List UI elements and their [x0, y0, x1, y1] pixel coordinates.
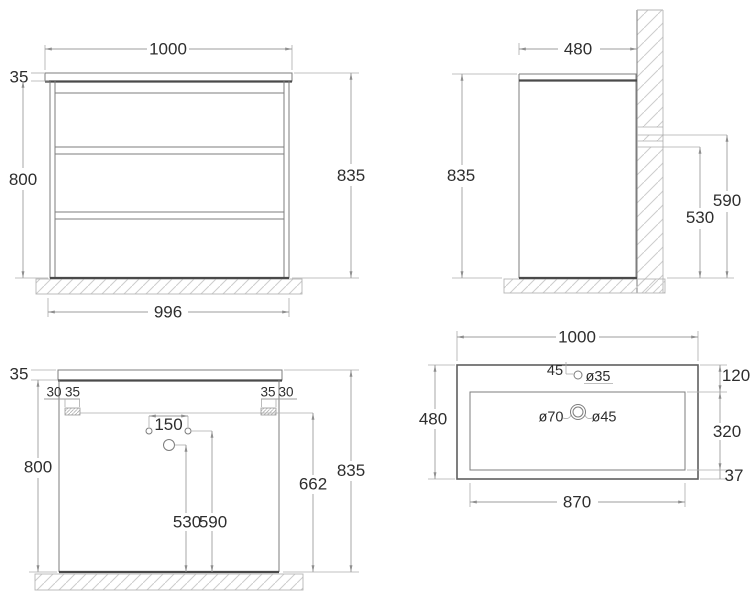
sink-outline — [457, 365, 698, 479]
wall-bracket-right — [261, 408, 276, 415]
side-dim-total-height: 835 — [447, 74, 517, 278]
sink-top-view: 1000 45 ø35 ø70 ø45 480 — [419, 328, 750, 512]
dim-label-sink-depth: 480 — [419, 410, 447, 429]
dim-label-bracket-height: 662 — [299, 475, 327, 494]
technical-drawing-sheet: 1000 35 800 835 996 — [0, 0, 754, 600]
sink-dim-width: 1000 — [457, 328, 698, 362]
dim-label-left-bracket-offset: 30 — [46, 385, 61, 400]
dim-label-right-bracket-offset: 30 — [278, 385, 293, 400]
dim-label-back-edge: 120 — [722, 366, 750, 385]
mounting-hole-left — [146, 428, 152, 434]
dim-label-front-body-height: 800 — [9, 170, 37, 189]
dim-label-tap-diameter: ø35 — [586, 369, 611, 385]
side-view: 480 835 590 530 — [447, 10, 741, 293]
front-dim-top-thickness: 35 — [10, 68, 49, 87]
dim-label-drain-outer: ø70 — [539, 410, 564, 426]
sink-dim-depth: 480 — [419, 365, 455, 479]
dim-label-tap-offset: 45 — [547, 363, 563, 379]
front-dim-body-height: 800 — [9, 81, 48, 278]
side-dim-depth: 480 — [519, 40, 637, 59]
dim-label-lower-connection: 530 — [686, 208, 714, 227]
dim-label-side-total-height: 835 — [447, 166, 475, 185]
dim-label-drain-inner: ø45 — [592, 410, 617, 426]
front-dim-total-height: 835 — [292, 73, 365, 278]
dim-label-front-width: 1000 — [149, 40, 187, 59]
wall-connection-lower — [638, 141, 663, 147]
dim-label-front-total-height: 835 — [337, 166, 365, 185]
back-dim-top-thickness: 35 — [10, 365, 58, 384]
dim-label-front-edge: 37 — [725, 466, 744, 485]
dim-label-back-top-thickness: 35 — [10, 365, 29, 384]
back-dim-total-height: 835 — [283, 370, 365, 572]
dim-label-right-bracket-width: 35 — [260, 385, 275, 400]
dim-label-upper-connection: 590 — [713, 191, 741, 210]
dim-label-front-top-thickness: 35 — [10, 68, 29, 87]
front-dim-base-width: 996 — [48, 298, 289, 322]
sink-dim-basin-depth: 320 — [713, 392, 741, 470]
floor-hatch — [35, 574, 303, 590]
dim-label-front-base-width: 996 — [154, 303, 182, 322]
wall-connection-upper — [638, 127, 663, 135]
back-dim-body-height: 800 — [24, 380, 57, 572]
back-dim-siphon-height: 530 — [173, 445, 201, 572]
sink-dim-basin-width: 870 — [470, 483, 685, 512]
siphon-hole — [164, 440, 175, 451]
dim-label-siphon-height: 530 — [173, 513, 201, 532]
dim-label-back-body-height: 800 — [24, 458, 52, 477]
floor-hatch — [504, 279, 665, 293]
dim-label-basin-width: 870 — [563, 493, 591, 512]
dim-label-side-depth: 480 — [564, 40, 592, 59]
dim-label-hole-spacing: 150 — [154, 415, 182, 434]
floor-hatch — [36, 279, 302, 294]
dim-label-side-hole-height: 590 — [199, 513, 227, 532]
countertop — [58, 370, 282, 380]
back-dim-hole-spacing: 150 — [149, 415, 188, 434]
back-dim-bracket-height: 662 — [299, 413, 327, 572]
vanity-cabinet-drawing: 1000 35 800 835 996 — [0, 0, 754, 600]
dim-label-back-total-height: 835 — [337, 461, 365, 480]
back-view: 30 35 35 30 35 150 590 — [10, 365, 366, 591]
back-dim-side-hole-height: 590 — [191, 431, 227, 572]
wall-bracket-left — [65, 408, 80, 415]
front-view: 1000 35 800 835 996 — [9, 40, 365, 322]
dim-label-sink-width: 1000 — [558, 328, 596, 347]
front-dim-width: 1000 — [45, 40, 292, 71]
countertop — [45, 73, 292, 81]
dim-label-basin-depth: 320 — [713, 422, 741, 441]
mounting-hole-right — [185, 428, 191, 434]
back-dim-left-bracket: 30 35 — [44, 385, 80, 408]
wall-hatch — [637, 10, 663, 293]
dim-label-left-bracket-width: 35 — [65, 385, 80, 400]
sink-label-tap-diameter: ø35 — [584, 369, 613, 385]
